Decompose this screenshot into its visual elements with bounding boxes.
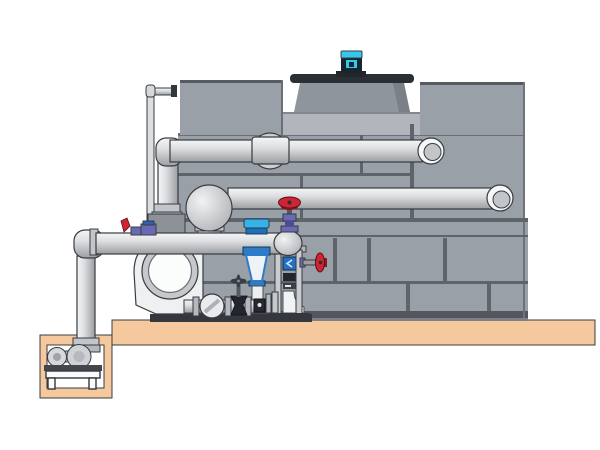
upper-pipe-end-cap: [424, 144, 441, 161]
top-left-panel-side: [281, 80, 283, 135]
top-right-panel: [420, 82, 525, 135]
cluster-valve-cap: [143, 221, 154, 225]
frame-junction-block: [283, 273, 296, 281]
sump-pump-motor-hub: [53, 353, 61, 361]
sump-riser-pipe: [77, 256, 95, 348]
foundation: [40, 320, 595, 398]
concrete-slab: [112, 320, 595, 345]
pump-inlet-opening: [149, 250, 192, 293]
cluster-valve-small: [131, 227, 141, 235]
butterfly-valve-cap: [244, 219, 269, 228]
manifold-end-dome: [274, 231, 302, 256]
cluster-valve-large: [141, 224, 156, 235]
drain-valve-stem: [303, 260, 317, 265]
handwheel-hub: [288, 201, 292, 205]
fan-motor-cap: [341, 51, 362, 58]
gate-valve-handwheel-pin: [237, 280, 240, 283]
pump-stand-left-leg: [48, 378, 55, 389]
top-left-panel-edge: [180, 80, 283, 83]
mid-pipe-elbow: [186, 185, 232, 231]
top-left-panel: [180, 80, 283, 135]
mid-pipe-run: [228, 188, 500, 209]
frame-base-beam: [269, 313, 310, 320]
makeup-elbow: [146, 85, 155, 97]
pipe-sleeve-coupling: [252, 137, 289, 164]
butterfly-valve-body: [246, 228, 267, 234]
valve-bonnet: [283, 214, 296, 221]
red-lever-handle: [121, 218, 130, 232]
upper-riser-collar: [154, 204, 180, 212]
spool-cylinder-1: [266, 294, 271, 313]
fan-motor-window-core: [349, 62, 354, 67]
pump-stand-top: [46, 371, 100, 378]
frame-blue-fitting: [283, 257, 296, 270]
riser-collar-upper: [73, 338, 99, 345]
pump-base-plate: [44, 365, 102, 371]
top-right-panel-edge: [420, 82, 525, 85]
makeup-riser: [147, 96, 154, 224]
pump-stand-right-leg: [89, 378, 96, 389]
cowl-base-band-edge: [283, 112, 420, 114]
diffuser-top-flange: [243, 247, 270, 255]
drain-wheel-hub: [319, 261, 323, 265]
cluster-valve-bodies: [131, 224, 156, 235]
frame-label-tick: [285, 285, 291, 287]
fan-cowl: [294, 83, 410, 112]
cowl-base-band: [283, 112, 420, 135]
upper-pipe-run: [170, 140, 422, 162]
flow-sensor-dot: [258, 303, 262, 307]
makeup-wall-flange: [171, 85, 177, 97]
spool-cylinder-2: [272, 292, 278, 313]
flange-2: [225, 297, 231, 316]
cooling-tower-diagram: [0, 0, 600, 450]
illustration-canvas: [0, 0, 600, 450]
valve-flange: [281, 226, 298, 232]
flange-1: [193, 297, 199, 316]
sump-pump-volute-hub: [74, 351, 85, 362]
mid-pipe-end-cap: [493, 191, 510, 208]
valve-neck: [285, 221, 294, 226]
